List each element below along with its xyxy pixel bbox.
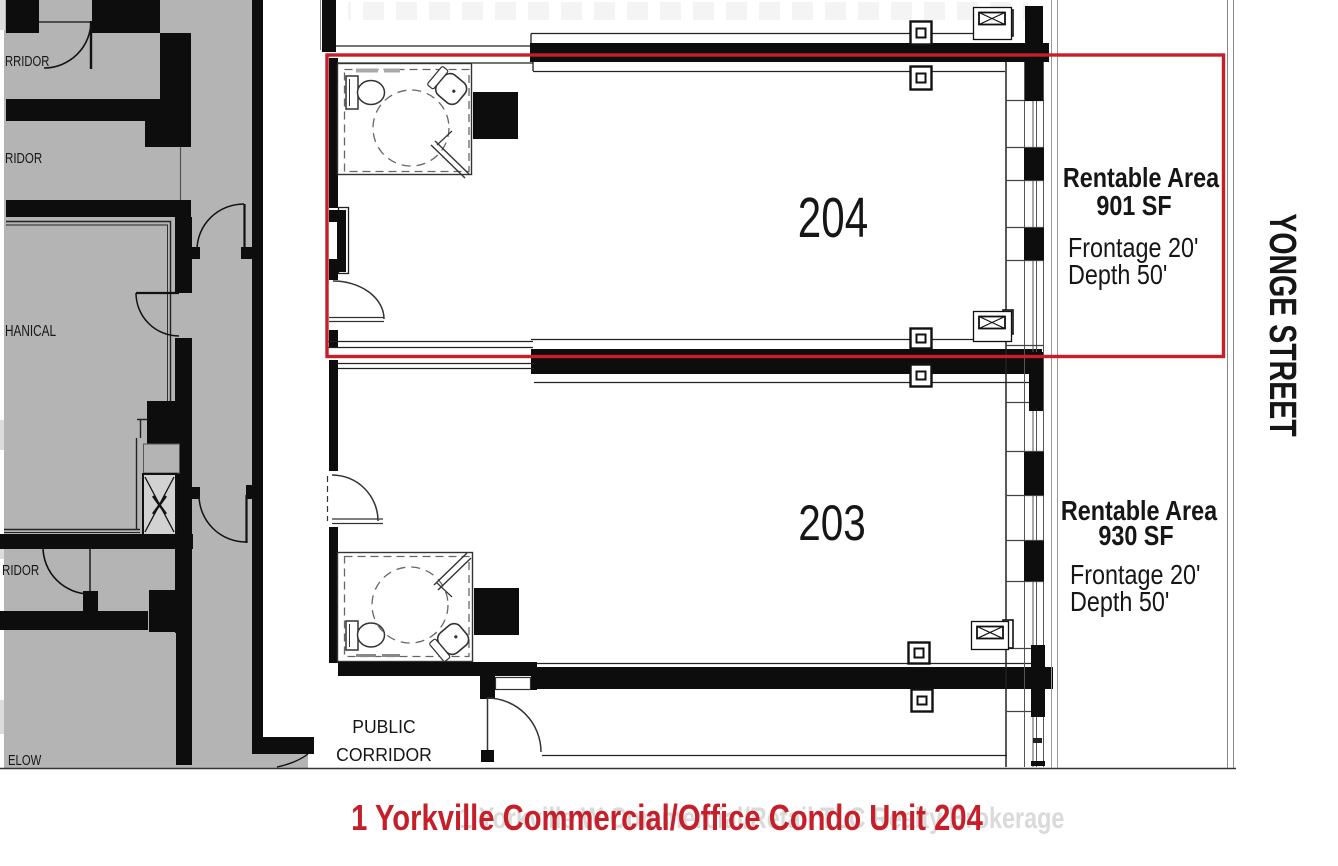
- svg-text:930 SF: 930 SF: [1098, 521, 1173, 551]
- svg-text:Depth 50': Depth 50': [1070, 587, 1169, 617]
- svg-text:Rentable Area: Rentable Area: [1063, 163, 1220, 193]
- svg-text:RRIDOR: RRIDOR: [5, 52, 49, 69]
- svg-text:Frontage 20': Frontage 20': [1068, 233, 1198, 263]
- svg-text:RIDOR: RIDOR: [2, 562, 39, 579]
- svg-text:YONGE STREET: YONGE STREET: [1261, 213, 1303, 437]
- svg-text:1 Yorkville Commercial/Office: 1 Yorkville Commercial/Office Condo Unit…: [351, 798, 983, 839]
- svg-text:Frontage 20': Frontage 20': [1070, 560, 1200, 590]
- svg-text:901 SF: 901 SF: [1096, 191, 1171, 221]
- svg-text:ELOW: ELOW: [8, 752, 42, 769]
- svg-text:HANICAL: HANICAL: [5, 322, 56, 339]
- svg-text:PUBLIC: PUBLIC: [352, 717, 415, 738]
- svg-text:CORRIDOR: CORRIDOR: [336, 745, 432, 766]
- svg-text:204: 204: [798, 186, 868, 250]
- svg-text:Depth 50': Depth 50': [1068, 260, 1167, 290]
- svg-text:203: 203: [798, 495, 866, 551]
- svg-text:RIDOR: RIDOR: [5, 150, 42, 167]
